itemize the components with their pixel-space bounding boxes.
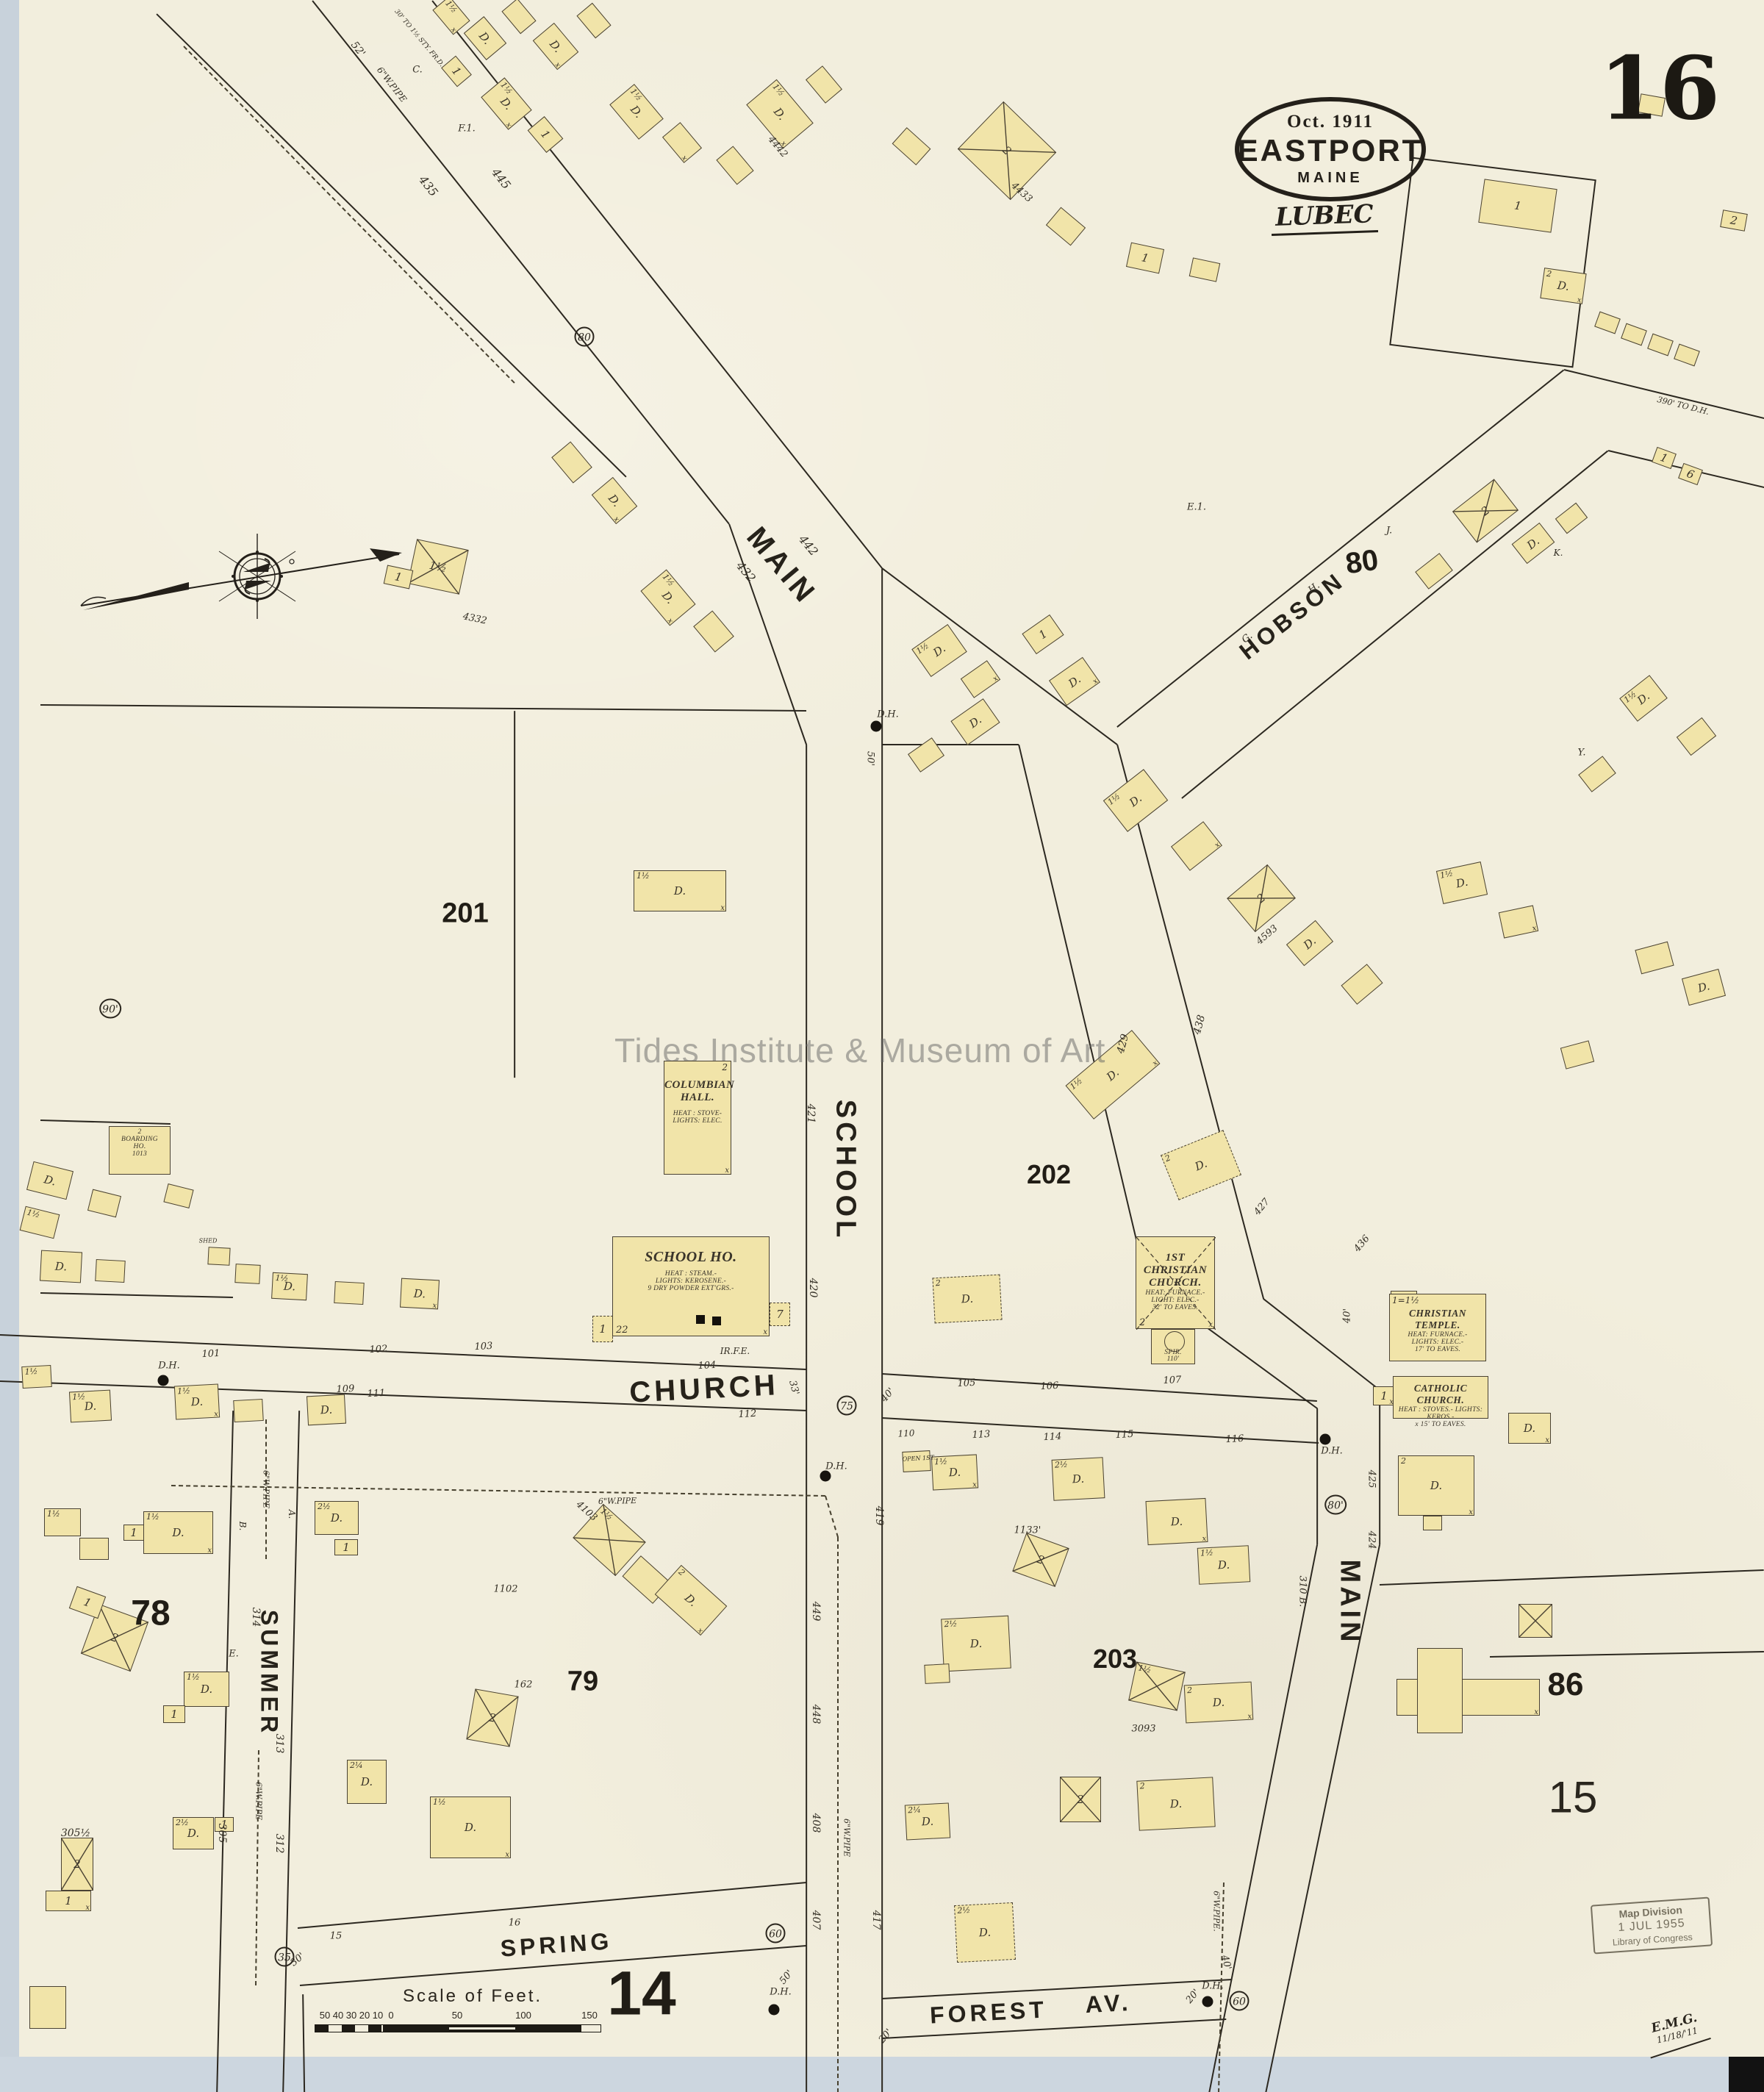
map-annotation: 101: [201, 1348, 220, 1360]
map-annotation: 424: [1366, 1531, 1377, 1550]
corner-mark: x: [1469, 1508, 1473, 1516]
building-detail: HEAT: FURNACE.-: [1390, 1331, 1485, 1339]
building-use-label: D.: [771, 105, 789, 123]
building-floors: 2½: [318, 1502, 331, 1511]
scan-corner-dark: [1729, 2057, 1764, 2092]
building-floors: 1½: [187, 1672, 200, 1682]
building: [1519, 1604, 1552, 1638]
map-annotation: J.: [1386, 526, 1392, 537]
building-use-label: 1: [1380, 1389, 1388, 1403]
block-number: 86: [1548, 1666, 1584, 1703]
building-use-label: D.: [172, 1526, 184, 1539]
corner-mark: x: [1545, 1436, 1549, 1444]
building: 1½D.: [271, 1272, 308, 1300]
building-christian-temple: 1=1½ CHRISTIAN TEMPLE. HEAT: FURNACE.- L…: [1389, 1294, 1486, 1361]
map-annotation: 16: [509, 1918, 521, 1929]
sheet-number: 16: [1599, 37, 1720, 140]
map-annotation: 448: [810, 1705, 822, 1724]
building-use-label: D.: [1169, 1797, 1182, 1811]
building-name: BOARDING: [110, 1136, 170, 1143]
building-use-label: D.: [1193, 1157, 1209, 1174]
title-subtitle: LUBEC: [1271, 199, 1379, 236]
road-line: [1316, 1408, 1318, 1544]
building-use-label: D.: [1301, 934, 1319, 952]
building-columbian-hall: 2 COLUMBIAN HALL. HEAT : STOVE- LIGHTS: …: [664, 1061, 731, 1175]
building: D.x: [1508, 1413, 1551, 1444]
map-annotation: D.H.: [877, 709, 899, 720]
building: 1: [592, 1316, 613, 1342]
map-annotation: C.: [412, 65, 423, 76]
map-annotation: 105: [957, 1378, 976, 1389]
road-line: [881, 568, 883, 2092]
map-annotation: 109: [336, 1383, 355, 1395]
scale-tick-label: 50: [452, 2010, 462, 2021]
corner-mark: x: [1208, 1321, 1213, 1329]
map-annotation: 408: [810, 1813, 822, 1833]
street-label: MAIN: [1334, 1559, 1366, 1645]
building-floors: 2: [1187, 1686, 1193, 1695]
map-annotation: B.: [237, 1522, 248, 1531]
building-use-label: 1: [130, 1526, 137, 1539]
building-detail: HEAT : STEAM.-: [613, 1270, 769, 1278]
building-use-label: D.: [1635, 689, 1652, 707]
corner-mark: x: [1534, 1708, 1538, 1716]
building: 1½D.: [184, 1672, 229, 1707]
building: 1½D.: [1197, 1545, 1251, 1585]
building-use-label: D.: [1212, 1696, 1225, 1710]
building-church-spire: SPIR. 110': [1151, 1329, 1195, 1364]
building: D.: [40, 1250, 82, 1283]
hydrant-dot: [769, 2005, 780, 2016]
building-use-label: D.: [1170, 1515, 1183, 1529]
building-use-label: D.: [948, 1466, 961, 1480]
floor-count: 2: [722, 1062, 728, 1072]
building-use-label: D.: [547, 37, 564, 55]
compass-rose-icon: [70, 513, 415, 638]
building: 1½: [21, 1365, 52, 1389]
corner-mark: x: [1202, 1535, 1206, 1543]
building-use-label: D.: [43, 1172, 57, 1188]
building: 2¼D.: [905, 1802, 950, 1840]
building-use-label: D.: [921, 1815, 933, 1829]
building: 2: [466, 1688, 518, 1747]
map-annotation: E.1.: [1187, 502, 1206, 513]
building: [29, 1986, 66, 2029]
building: [924, 1663, 950, 1684]
building: 1x: [46, 1891, 91, 1911]
building-detail3: 17' TO EAVES.: [1390, 1346, 1485, 1353]
building-floors: 2¼: [908, 1805, 921, 1815]
building-use-label: 1: [599, 1322, 606, 1336]
corner-mark: x: [1247, 1713, 1252, 1721]
map-annotation: D.H.: [825, 1461, 847, 1472]
title-oval: Oct. 1911 EASTPORT MAINE: [1235, 97, 1426, 201]
building-use-label: D.: [606, 492, 623, 509]
road-line: [1379, 1390, 1380, 1544]
building-floors: 1½: [177, 1386, 190, 1396]
hydrant-dot: [1320, 1434, 1331, 1445]
map-annotation: D.H.: [770, 1987, 792, 1998]
building-use-label: 1: [343, 1541, 350, 1554]
building: D.x: [1145, 1498, 1208, 1545]
building-use-label: 2: [1729, 213, 1739, 227]
building-first-christian-church: 1ST CHRISTIAN CHURCH. HEAT: FURNACE.- LI…: [1136, 1236, 1215, 1329]
building: [1423, 1516, 1442, 1530]
corner-mark: x: [505, 1851, 509, 1859]
hydrant-dot: [820, 1471, 831, 1482]
map-annotation: 310 B.: [1297, 1576, 1308, 1608]
building-detail2: LIGHTS: ELEC.-: [1390, 1339, 1485, 1346]
building: [79, 1538, 109, 1560]
building-floors: 2½: [944, 1619, 957, 1629]
building-name: SCHOOL HO.: [613, 1249, 769, 1266]
scale-tick-label: 150: [581, 2010, 598, 2021]
map-annotation: K.: [1554, 548, 1563, 558]
building-name: CHRISTIAN TEMPLE.: [1390, 1308, 1485, 1331]
building: 2D.x: [1184, 1682, 1254, 1724]
building-use-label: 1: [1658, 451, 1669, 465]
building-use-label: 1: [1513, 198, 1522, 212]
building-use-label: 1: [171, 1708, 178, 1721]
map-annotation: 107: [1163, 1375, 1182, 1386]
map-annotation: 112: [738, 1408, 757, 1420]
building-boarding-house: 2 BOARDING HO. 1013: [109, 1126, 171, 1175]
corner-floors: 22: [616, 1325, 628, 1336]
building-use-label: D.: [498, 95, 515, 112]
scale-tick-label: 20: [359, 2010, 370, 2021]
map-annotation: 113: [972, 1429, 991, 1441]
building-use-label: D.: [969, 1637, 982, 1651]
street-width-badge: 60: [1230, 1991, 1249, 2011]
building-use-label: D.: [320, 1403, 332, 1417]
title-date: Oct. 1911: [1287, 112, 1374, 132]
street-width-badge: 75: [837, 1396, 857, 1416]
building: 2D.: [1136, 1777, 1215, 1830]
map-annotation: 106: [1040, 1380, 1059, 1392]
building-use-label: D.: [1524, 1422, 1535, 1435]
building-use-label: D.: [931, 642, 948, 659]
corner-mark: x: [432, 1302, 437, 1310]
building-use-label: D.: [682, 1591, 700, 1609]
building-use-label: D.: [967, 713, 984, 731]
building-use-label: D.: [1104, 1066, 1122, 1083]
map-annotation: 104: [698, 1360, 717, 1372]
building-detail2: LIGHTS: KEROSENE.-: [613, 1278, 769, 1285]
street-width-badge: 60: [766, 1924, 786, 1944]
block-number: 201: [442, 898, 488, 930]
building-use-label: D.: [476, 29, 494, 47]
scan-edge-left: [0, 0, 19, 2092]
map-annotation: SHED: [199, 1238, 218, 1244]
map-annotation: 115: [1115, 1429, 1134, 1441]
map-annotation: 110: [897, 1427, 915, 1439]
building-floors: 2½: [1055, 1460, 1068, 1470]
street-width-badge: 80': [1324, 1495, 1347, 1515]
building: 2D.x: [1398, 1455, 1474, 1516]
building-use-label: D.: [201, 1683, 212, 1696]
scale-tick-label: 30: [346, 2010, 356, 2021]
map-annotation: 114: [1043, 1431, 1062, 1443]
map-annotation: Y.: [1577, 748, 1585, 759]
map-annotation: 421: [805, 1104, 817, 1124]
map-annotation: 162: [514, 1680, 533, 1691]
building-detail2: LIGHTS: ELEC.: [664, 1117, 731, 1125]
building-use-label: D.: [1524, 534, 1542, 552]
building: 1½D.x: [430, 1797, 511, 1858]
building-school-house: SCHOOL HO. HEAT : STEAM.- LIGHTS: KEROSE…: [612, 1236, 770, 1336]
corner-mark: x: [1577, 296, 1582, 305]
corner-mark: x: [972, 1480, 977, 1489]
building-use-label: D.: [1127, 792, 1144, 809]
building-floors: 2: [1401, 1456, 1406, 1466]
hydrant-dot: [1202, 1996, 1213, 2007]
building-floors: 2: [676, 1567, 686, 1577]
building: [234, 1264, 260, 1284]
building-use-label: D.: [54, 1260, 67, 1274]
block-number: 80: [1344, 544, 1380, 581]
building-catholic-church: CATHOLIC CHURCH. HEAT : STOVES.- LIGHTS:…: [1393, 1376, 1488, 1419]
building-name: CATHOLIC CHURCH.: [1394, 1383, 1488, 1406]
map-annotation: 3093: [1131, 1724, 1155, 1735]
title-city: EASTPORT: [1238, 133, 1424, 168]
building-use-label: D.: [674, 884, 686, 898]
map-annotation: 305: [216, 1824, 228, 1844]
building: 1: [123, 1525, 144, 1541]
hydrant-dot: [871, 721, 882, 732]
map-annotation: 419: [873, 1506, 885, 1526]
scale-ticks: 5040302010050100150: [315, 2010, 601, 2023]
map-annotation: IR.F.E.: [720, 1346, 750, 1356]
building-use-label: 1: [1036, 627, 1050, 642]
building-floors: 1½: [1439, 868, 1454, 880]
map-annotation: 102: [369, 1344, 388, 1355]
map-annotation: 312: [273, 1834, 285, 1854]
floor-count: 1=1½: [1392, 1295, 1419, 1305]
corner-mark: x: [720, 904, 725, 912]
building-use-label: D.: [659, 589, 677, 606]
building-use-label: D.: [961, 1292, 973, 1306]
map-annotation: D.H.: [1321, 1446, 1343, 1457]
map-annotation: 15: [330, 1931, 343, 1942]
building-use-label: D.: [628, 103, 645, 121]
map-annotation: 50': [865, 751, 876, 766]
corner-floors: 2: [1139, 1317, 1145, 1328]
building: 1½D.x: [143, 1511, 213, 1554]
map-annotation: 407: [810, 1910, 822, 1930]
building: 1½D.x: [174, 1383, 220, 1419]
building-use-label: D.: [1455, 875, 1469, 891]
building: 1: [334, 1539, 358, 1555]
building-floors: 2: [1164, 1153, 1172, 1164]
building: 2: [61, 1838, 93, 1891]
road-line: [806, 745, 807, 2092]
library-of-congress-stamp: Map Division 1 JUL 1955 Library of Congr…: [1591, 1896, 1713, 1954]
map-annotation: 420: [807, 1278, 819, 1298]
road-line: [882, 744, 1019, 745]
corner-mark: x: [725, 1167, 729, 1175]
map-annotation: 103: [474, 1341, 493, 1353]
building-floors: 1½: [146, 1512, 159, 1522]
building-use-label: D.: [465, 1821, 476, 1834]
building: 1x: [1373, 1386, 1395, 1405]
map-annotation: 1102: [493, 1584, 517, 1595]
building: [233, 1399, 264, 1422]
map-annotation: 314: [250, 1608, 262, 1627]
building-use-label: 2: [1077, 1793, 1084, 1806]
building-floors: 1½: [433, 1797, 446, 1807]
street-width-badge: 90': [99, 999, 121, 1019]
building-name: 1ST CHRISTIAN: [1136, 1252, 1214, 1277]
map-annotation: 6"W.PIPE: [598, 1496, 637, 1506]
building: [334, 1281, 365, 1305]
building-use-label: D.: [1072, 1472, 1084, 1486]
building-floors: 1½: [934, 1457, 947, 1467]
building-name2: HO.: [110, 1143, 170, 1150]
chimney-mark: [696, 1315, 705, 1324]
building-floors: 2: [1139, 1781, 1145, 1791]
sanborn-map-sheet: 1½xD.D.x11½D.x11½D.x1½D.x2112D.x2161½11½…: [0, 0, 1764, 2092]
lot-number: 1013: [110, 1150, 170, 1158]
building: 2½D.: [941, 1616, 1011, 1672]
title-state: MAINE: [1297, 170, 1363, 187]
map-annotation: F.1.: [458, 123, 476, 135]
building-floors: 2¼: [350, 1760, 363, 1770]
scale-tick-label: 100: [515, 2010, 531, 2021]
building: 7: [770, 1303, 790, 1326]
building-detail2: x 15' TO EAVES.: [1394, 1421, 1488, 1428]
building-detail: HEAT : STOVES.- LIGHTS: KEROS.-: [1394, 1406, 1488, 1421]
building-detail2: LIGHT: ELEC.-: [1136, 1297, 1214, 1304]
corner-mark: x: [214, 1411, 218, 1419]
block-number: 79: [567, 1666, 598, 1698]
building-use-label: 7: [776, 1308, 784, 1321]
building-detail3: 9 DRY POWDER EXT'GRS.-: [613, 1285, 769, 1292]
block-number: 202: [1027, 1159, 1071, 1190]
street-label: SCHOOL: [830, 1100, 861, 1242]
building: 1½: [44, 1508, 81, 1536]
map-annotation: D.H.: [1202, 1981, 1224, 1992]
street-label: AV.: [1085, 1989, 1133, 2018]
building-use-label: 1: [82, 1595, 93, 1610]
building-use-label: D.: [1217, 1558, 1230, 1572]
water-pipe-line: [837, 1537, 839, 2092]
building-name: COLUMBIAN: [664, 1079, 731, 1092]
building-use-label: D.: [283, 1280, 295, 1294]
chimney-mark: [712, 1317, 721, 1325]
corner-mark: x: [763, 1328, 767, 1336]
building: 2D.: [932, 1275, 1002, 1324]
map-annotation: 40': [1342, 1308, 1353, 1323]
corner-mark: x: [85, 1904, 90, 1912]
building: 1½D.x: [931, 1454, 978, 1490]
building-floors: 1½: [26, 1208, 40, 1220]
block-number: 203: [1093, 1644, 1137, 1674]
building-use-label: 1: [449, 65, 464, 79]
building-use-label: D.: [84, 1400, 96, 1414]
scale-bar-graphic: [315, 2024, 601, 2032]
building: 2½D.: [315, 1501, 359, 1535]
building-name2: HALL.: [664, 1092, 731, 1104]
building-detail: HEAT : STOVE-: [664, 1110, 731, 1117]
building: 2½D.: [954, 1902, 1016, 1963]
road-line: [514, 711, 515, 1078]
building-use-label: 1: [538, 128, 553, 142]
building-use-label: D.: [187, 1827, 199, 1840]
building-use-label: D.: [1557, 279, 1571, 293]
building-use-label: 2: [73, 1858, 81, 1871]
building: 1: [163, 1705, 185, 1723]
building: 2D.x: [1540, 268, 1586, 304]
building-use-label: D.: [331, 1511, 343, 1525]
building-floors: 2: [935, 1278, 941, 1288]
map-annotation: 6"W.PIPE: [842, 1819, 852, 1857]
floor-count: 2: [110, 1128, 170, 1136]
building-use-label: D.: [1430, 1479, 1442, 1492]
building-floors: 1½: [24, 1366, 37, 1377]
building-floors: 1½: [1200, 1548, 1213, 1558]
map-annotation: 6"W.PIPE.: [1212, 1891, 1222, 1932]
map-annotation: 313: [273, 1734, 285, 1754]
map-annotation: 417: [870, 1910, 882, 1930]
building-use-label: D.: [190, 1395, 203, 1409]
building-detail: HEAT: FURNACE.-: [1136, 1289, 1214, 1297]
building-use-label: 1: [1140, 251, 1150, 265]
scale-bar: Scale of Feet. 5040302010050100150: [315, 1986, 601, 2032]
corner-mark: x: [207, 1547, 212, 1555]
scale-tick-label: 40: [333, 2010, 343, 2021]
map-annotation: D.H.: [158, 1361, 180, 1372]
map-annotation: 425: [1366, 1470, 1377, 1489]
map-annotation: 1133': [1014, 1525, 1041, 1536]
building-floors: 2: [1546, 269, 1552, 279]
street-label: SUMMER: [256, 1610, 283, 1736]
building-name2: CHURCH.: [1136, 1277, 1214, 1289]
map-annotation: 305½: [61, 1827, 90, 1839]
building-use-label: D.: [1066, 673, 1083, 690]
roof-cross-icon: [1519, 1604, 1552, 1638]
building-floors: 2½: [957, 1905, 970, 1916]
scale-tick-label: 50: [320, 2010, 330, 2021]
building-floors: 1½: [47, 1509, 60, 1519]
block-number: 14: [607, 1958, 675, 2030]
block-number: 78: [131, 1594, 170, 1634]
scale-tick-label: 0: [388, 2010, 393, 2021]
building: [1417, 1648, 1463, 1733]
building-detail3: 32' TO EAVES.: [1136, 1304, 1214, 1311]
building: 2: [1060, 1777, 1101, 1822]
building: [95, 1259, 126, 1283]
building: 2½D.: [173, 1817, 214, 1849]
building-use-label: D.: [1696, 979, 1711, 995]
hydrant-dot: [158, 1375, 169, 1386]
corner-mark: x: [1532, 924, 1538, 933]
building-use-label: 1: [65, 1894, 72, 1907]
building: 2¼D.: [347, 1760, 387, 1804]
building-floors: 1½: [637, 871, 650, 881]
building-use-label: D.: [361, 1775, 373, 1788]
spire-height: 110': [1152, 1355, 1194, 1363]
scale-title: Scale of Feet.: [344, 1986, 601, 2007]
map-annotation: A.: [287, 1510, 297, 1519]
building: [207, 1247, 230, 1266]
map-annotation: 111: [367, 1388, 386, 1400]
building: 1½D.: [69, 1390, 112, 1423]
building: 1½D.x: [634, 870, 726, 911]
building-use-label: D.: [978, 1926, 991, 1940]
building: D.x: [400, 1278, 440, 1310]
building: 2½D.: [1052, 1457, 1105, 1501]
scale-tick-label: 10: [373, 2010, 383, 2021]
